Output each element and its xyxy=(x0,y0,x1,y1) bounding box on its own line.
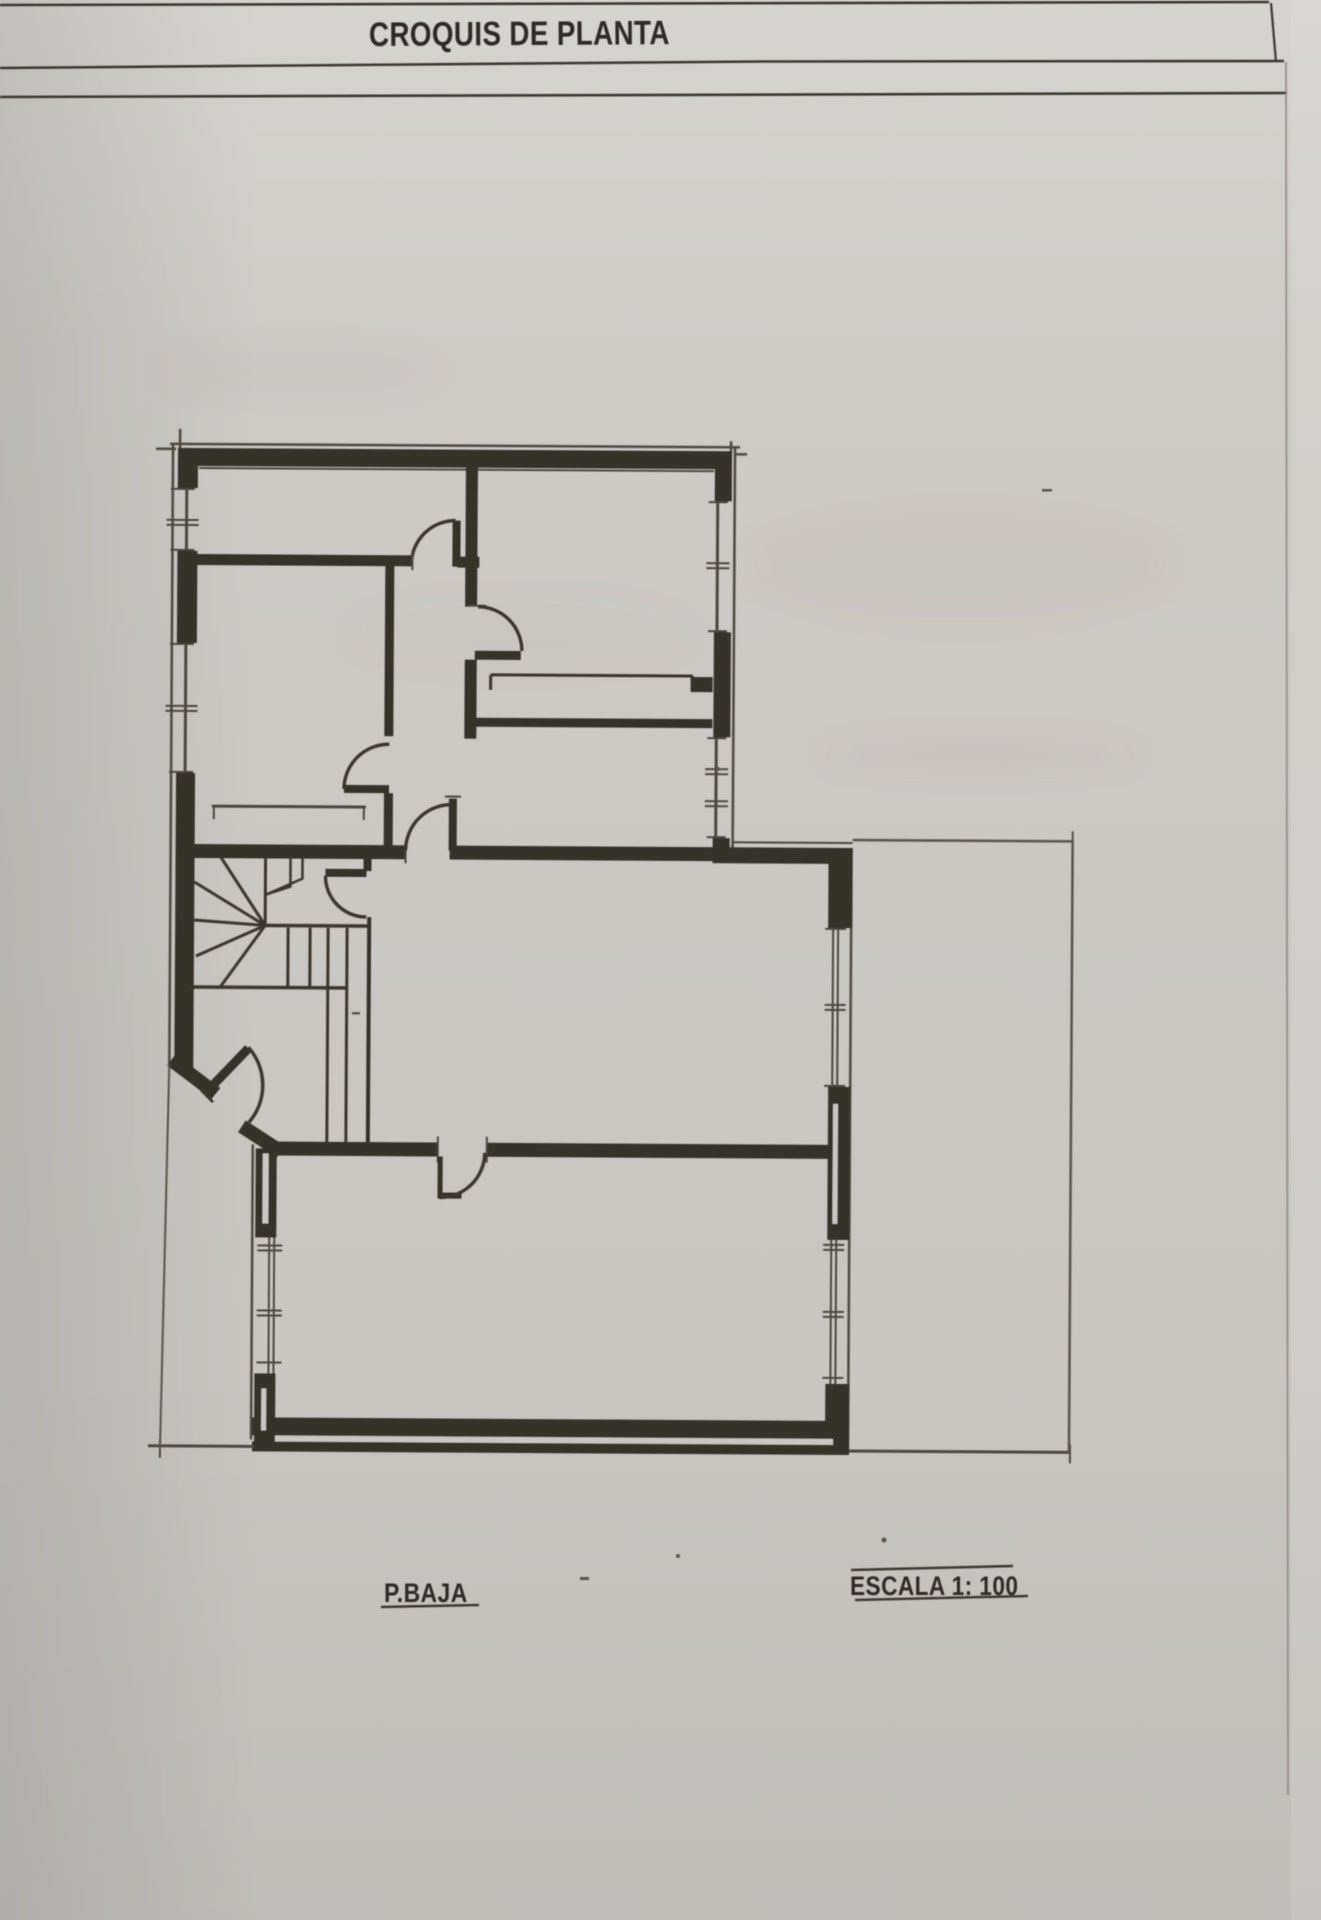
svg-text:CROQUIS DE PLANTA: CROQUIS DE PLANTA xyxy=(369,14,670,54)
svg-text:P.BAJA: P.BAJA xyxy=(384,1578,468,1608)
